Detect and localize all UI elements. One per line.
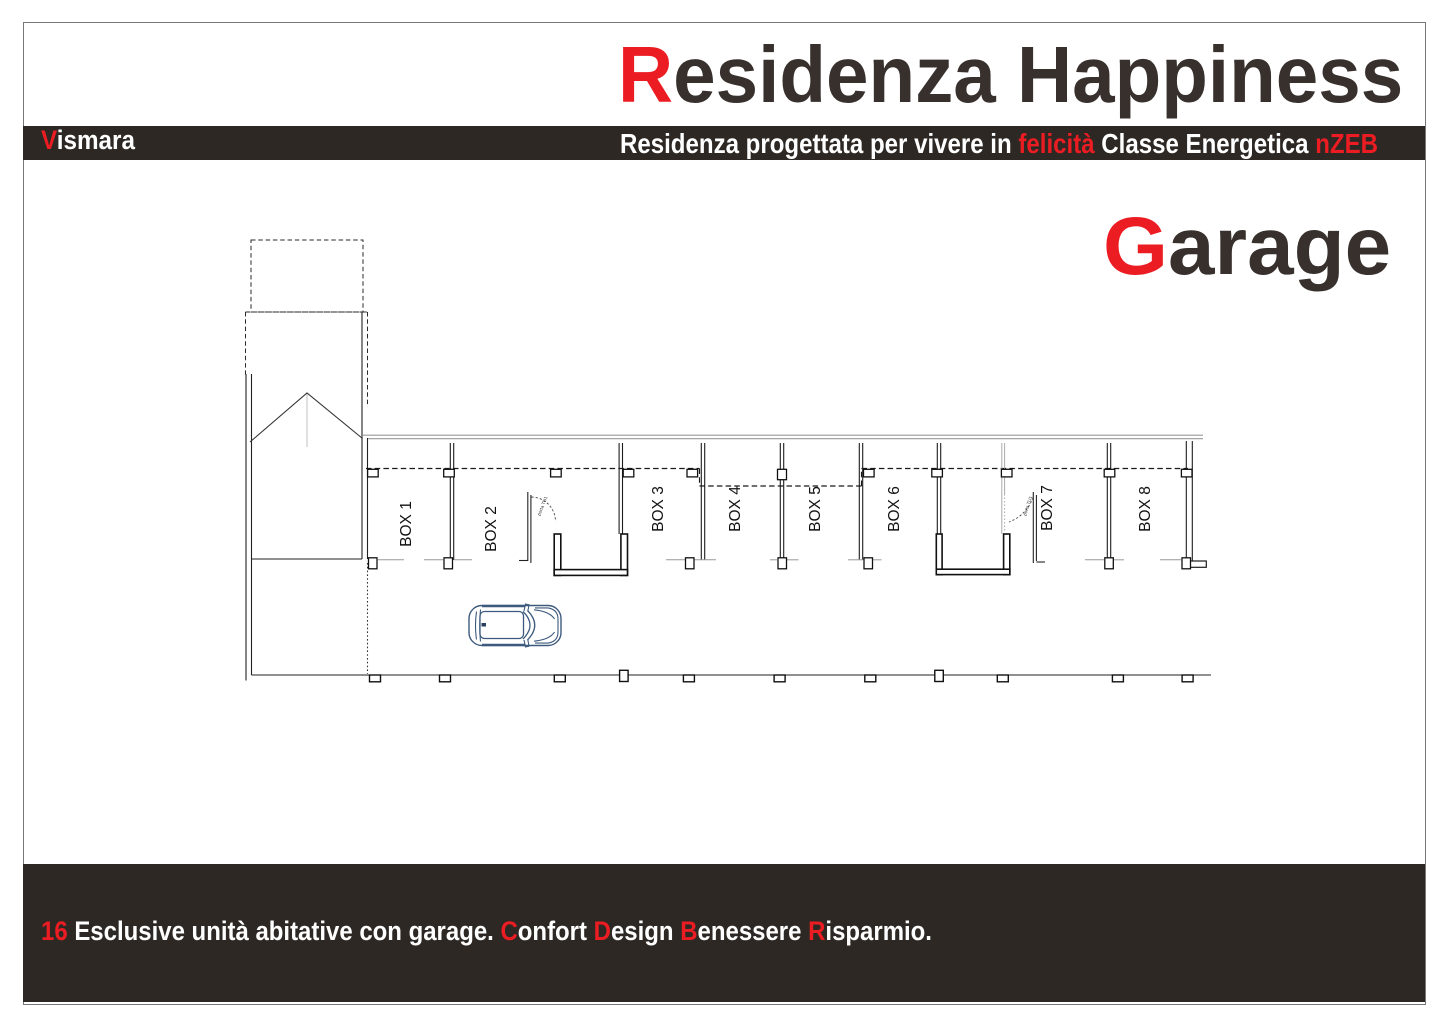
svg-text:BOX 1: BOX 1	[398, 501, 415, 547]
svg-text:BOX 4: BOX 4	[727, 486, 744, 532]
svg-text:BOX 2: BOX 2	[483, 506, 500, 552]
svg-text:BOX 8: BOX 8	[1137, 486, 1154, 532]
svg-text:BOX 3: BOX 3	[650, 486, 667, 532]
svg-text:BOX 6: BOX 6	[886, 486, 903, 532]
svg-text:porta TU1: porta TU1	[536, 495, 548, 516]
svg-text:BOX 5: BOX 5	[807, 486, 824, 532]
svg-text:BOX 7: BOX 7	[1039, 485, 1056, 531]
svg-text:porta TU1: porta TU1	[1022, 495, 1033, 516]
